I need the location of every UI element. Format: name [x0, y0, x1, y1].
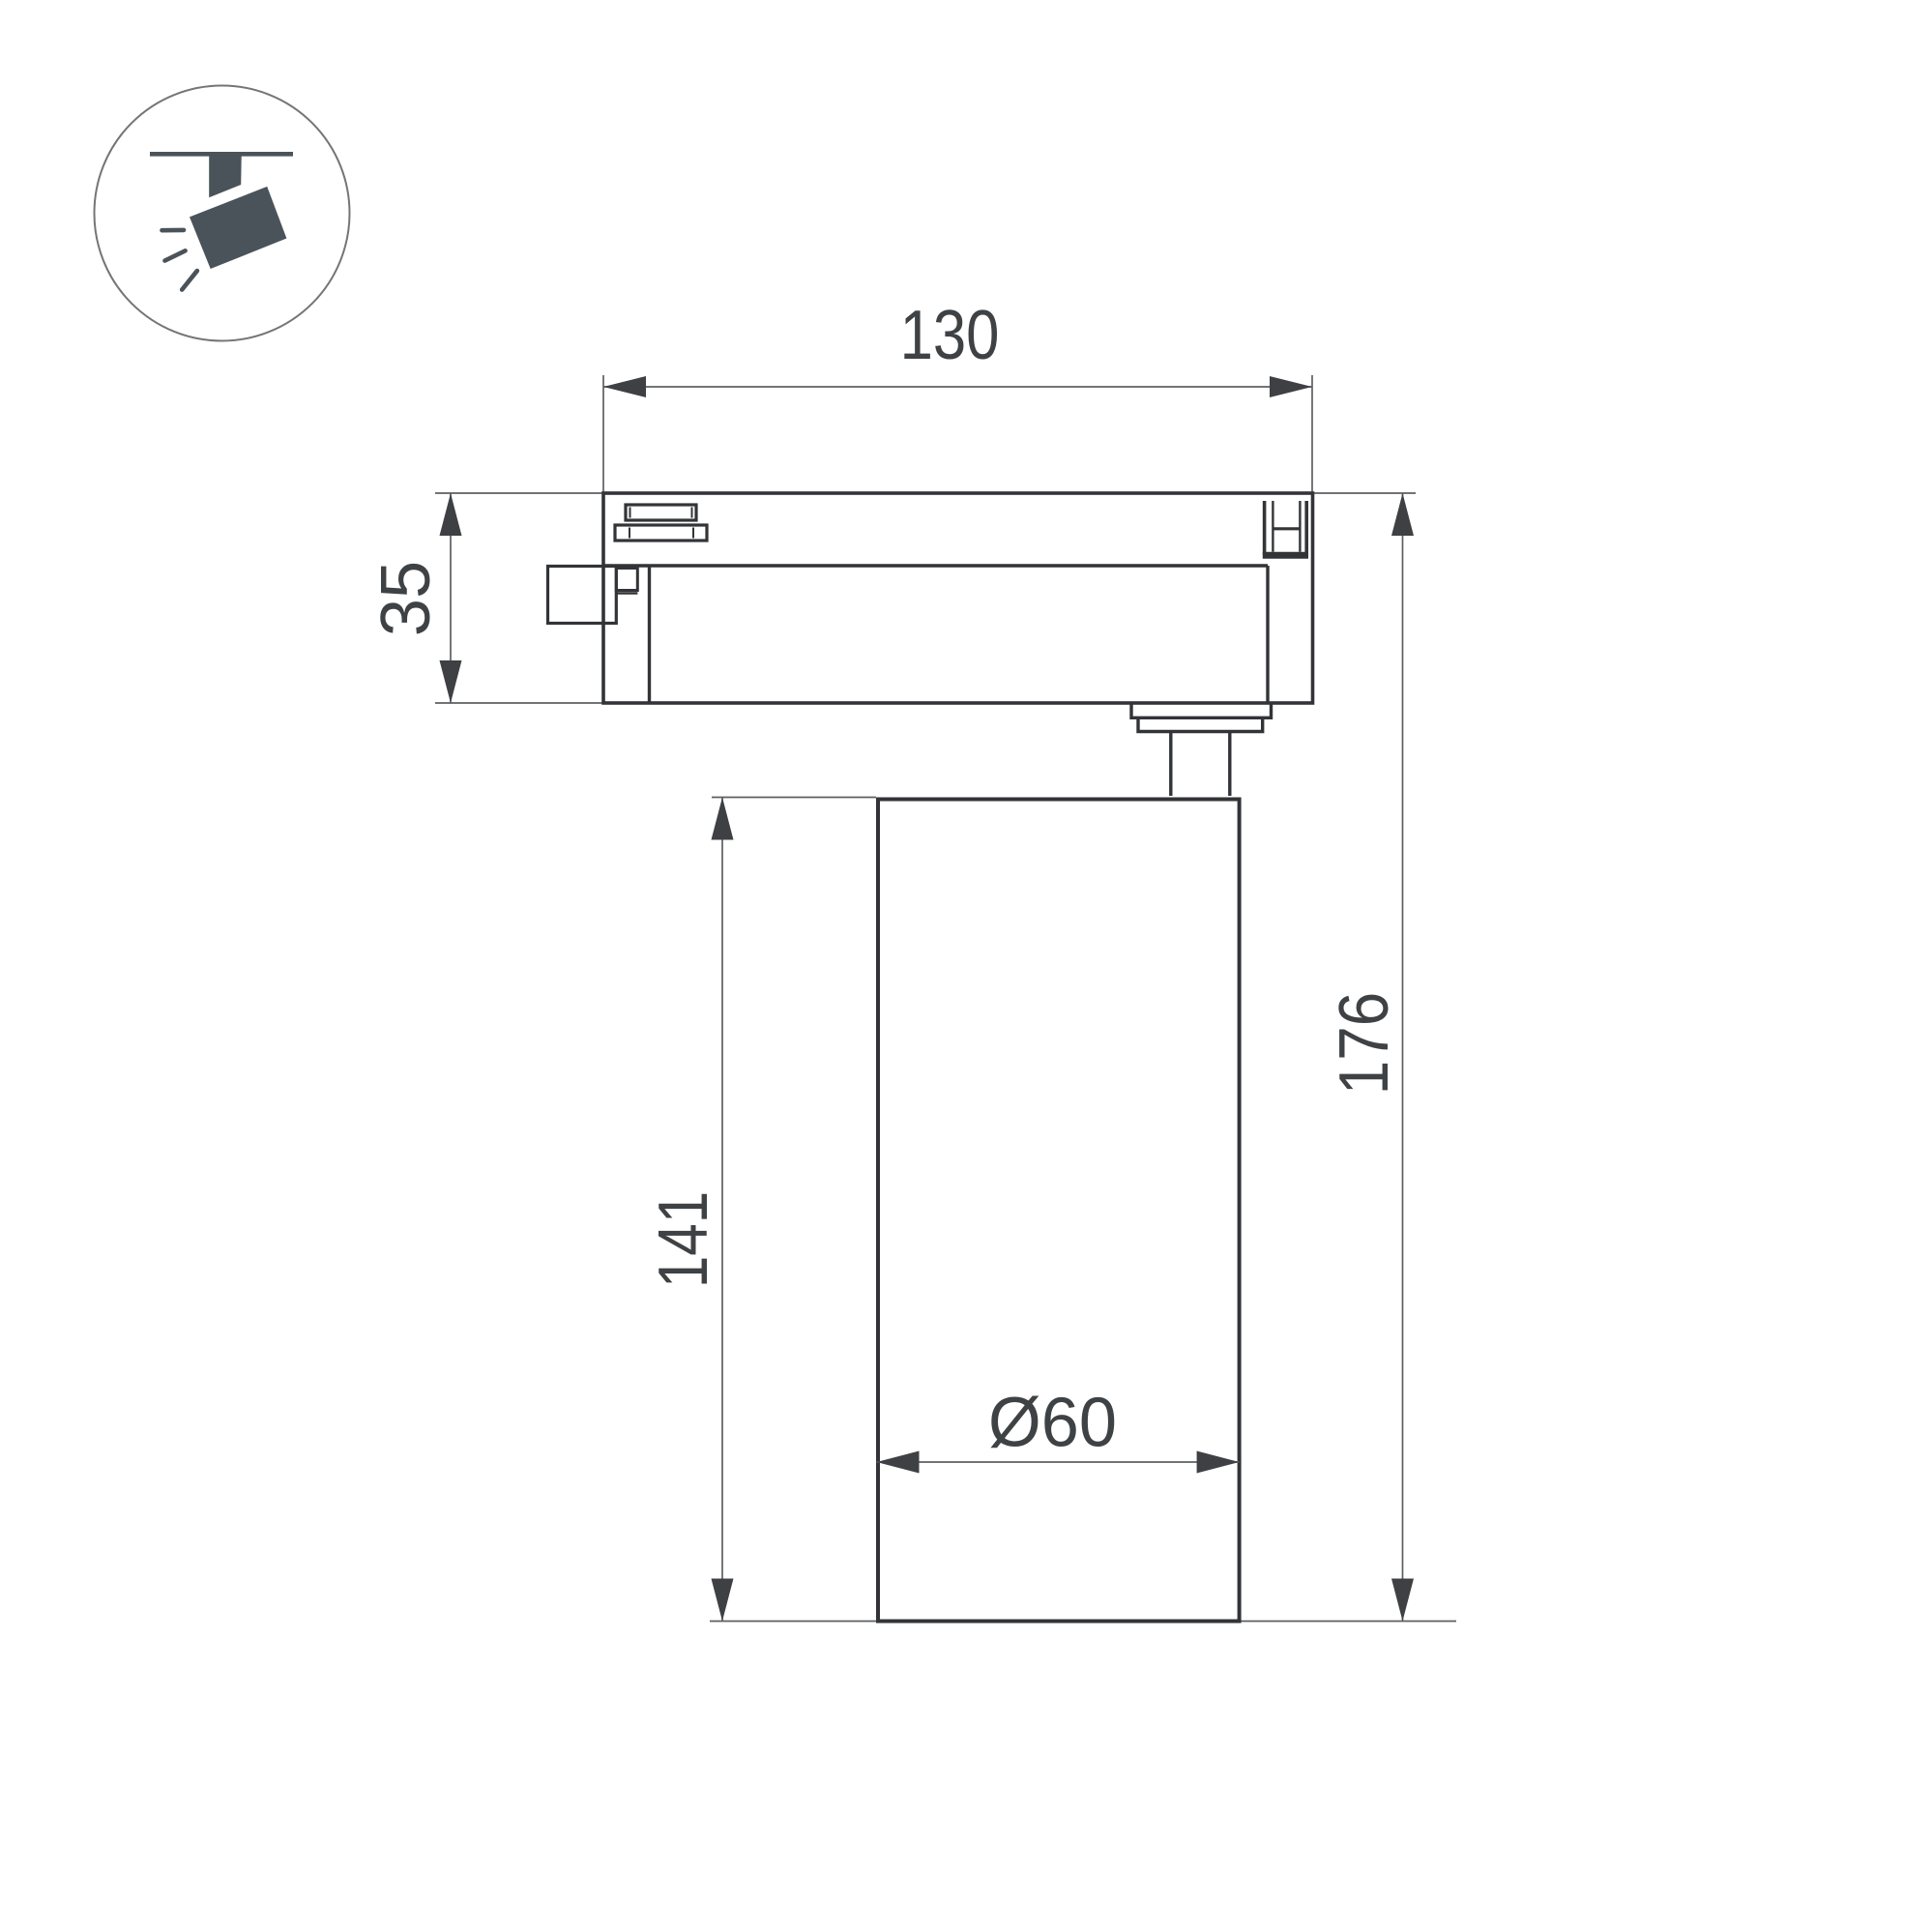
- svg-text:130: 130: [900, 296, 1000, 374]
- svg-text:141: 141: [645, 1191, 723, 1288]
- svg-text:35: 35: [366, 561, 445, 636]
- svg-text:176: 176: [1325, 992, 1403, 1095]
- svg-text:Ø60: Ø60: [988, 1384, 1117, 1462]
